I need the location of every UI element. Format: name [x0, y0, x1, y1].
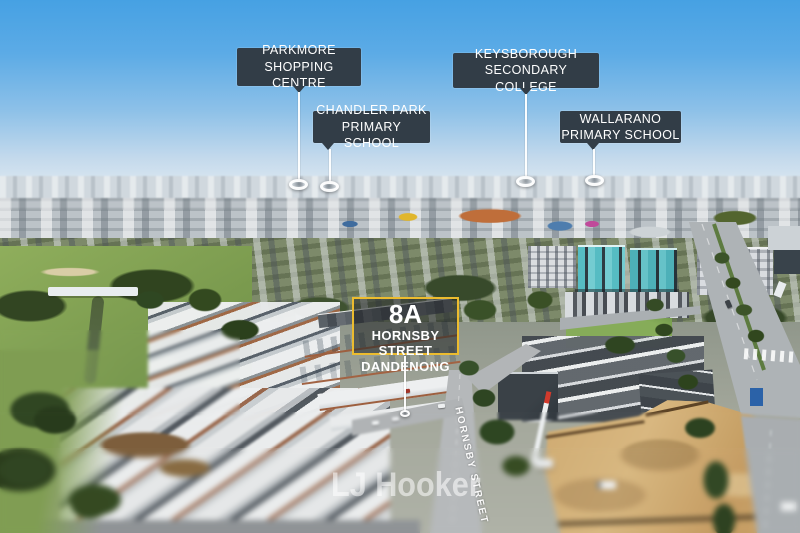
callout-pointer [322, 143, 334, 150]
callout-leader-line [329, 149, 331, 182]
location-marker [289, 179, 308, 190]
property-suburb: DANDENONG [356, 360, 455, 375]
parked-car [438, 404, 445, 409]
callout-line1: WALLARANO [580, 111, 662, 128]
blue-shipping-container [750, 388, 763, 406]
location-marker [516, 176, 535, 187]
property-leader-line [404, 356, 406, 412]
callout-parkmore-shopping-centre: PARKMORE SHOPPING CENTRE [237, 48, 361, 86]
callout-chandler-park-primary-school: CHANDLER PARK PRIMARY SCHOOL [313, 111, 430, 143]
ljhooker-watermark: LJ Hooker [331, 466, 481, 505]
property-address-badge: 8A HORNSBY STREET DANDENONG [352, 297, 459, 355]
property-street: HORNSBY STREET [356, 329, 455, 359]
blur-distance [0, 168, 800, 210]
callout-keysborough-secondary-college: KEYSBOROUGH SECONDARY COLLEGE [453, 53, 599, 88]
blur-transition [0, 412, 800, 450]
callout-line1: CHANDLER PARK [316, 102, 427, 119]
blur-left [0, 330, 240, 415]
callout-line1: KEYSBOROUGH [475, 46, 577, 63]
service-road [560, 306, 700, 330]
location-marker [320, 181, 339, 192]
aerial-photo: PARKMORE SHOPPING CENTRE CHANDLER PARK P… [0, 0, 800, 533]
callout-wallarano-primary-school: WALLARANO PRIMARY SCHOOL [560, 111, 681, 143]
callout-leader-line [593, 149, 595, 178]
callout-line2: PRIMARY SCHOOL [561, 127, 679, 144]
main-road [689, 222, 800, 418]
callout-line1: PARKMORE [262, 42, 336, 59]
property-unit: 8A [356, 301, 455, 327]
property-marker [400, 410, 410, 417]
location-marker [585, 175, 604, 186]
callout-leader-line [525, 94, 527, 177]
callout-leader-line [298, 92, 300, 180]
hornsby-street-upper [467, 344, 541, 394]
